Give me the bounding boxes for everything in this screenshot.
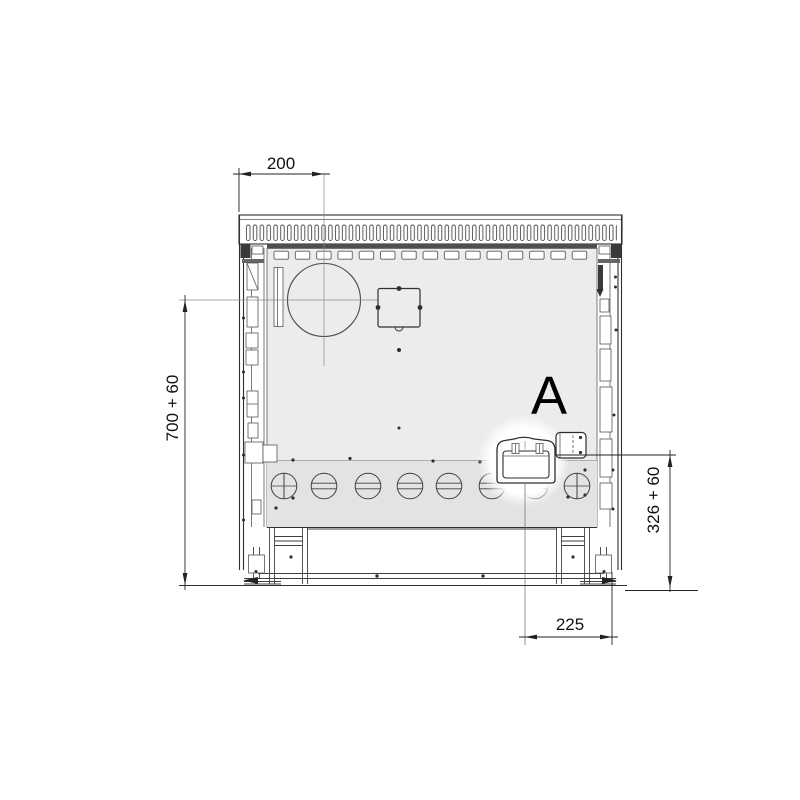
- left-leg: [270, 528, 308, 585]
- vent-grille: [239, 215, 622, 249]
- left-foot: [243, 547, 281, 584]
- dimension-top-200: 200: [233, 154, 330, 212]
- dimension-left-label: 700 + 60: [163, 375, 182, 442]
- left-hinge-bracket: [245, 442, 263, 463]
- technical-drawing-canvas: 200 700 + 60 326 + 60 225 A: [0, 0, 800, 800]
- legs: [270, 528, 590, 585]
- panel-vent-slots: [273, 250, 593, 261]
- right-corner-bracket: [611, 244, 621, 258]
- left-corner-bracket: [241, 244, 251, 258]
- plinth-drawer: [258, 529, 604, 579]
- connection-box-small: [556, 433, 586, 459]
- dimension-bottom-label: 225: [556, 615, 584, 634]
- detail-marker-a: A: [531, 366, 567, 426]
- dimension-left-700-60: 700 + 60: [163, 295, 187, 590]
- dimension-top-label: 200: [267, 154, 295, 173]
- dimension-right-label: 326 + 60: [644, 467, 663, 534]
- right-frame: [597, 215, 622, 570]
- mains-terminal: [478, 415, 570, 507]
- right-foot: [580, 547, 617, 584]
- vent-slots: [245, 224, 617, 242]
- right-latch: [598, 265, 603, 290]
- junction-box: [376, 286, 423, 331]
- cooker-rear-view-drawing: 200 700 + 60 326 + 60 225 A: [0, 0, 800, 800]
- right-leg: [557, 528, 590, 585]
